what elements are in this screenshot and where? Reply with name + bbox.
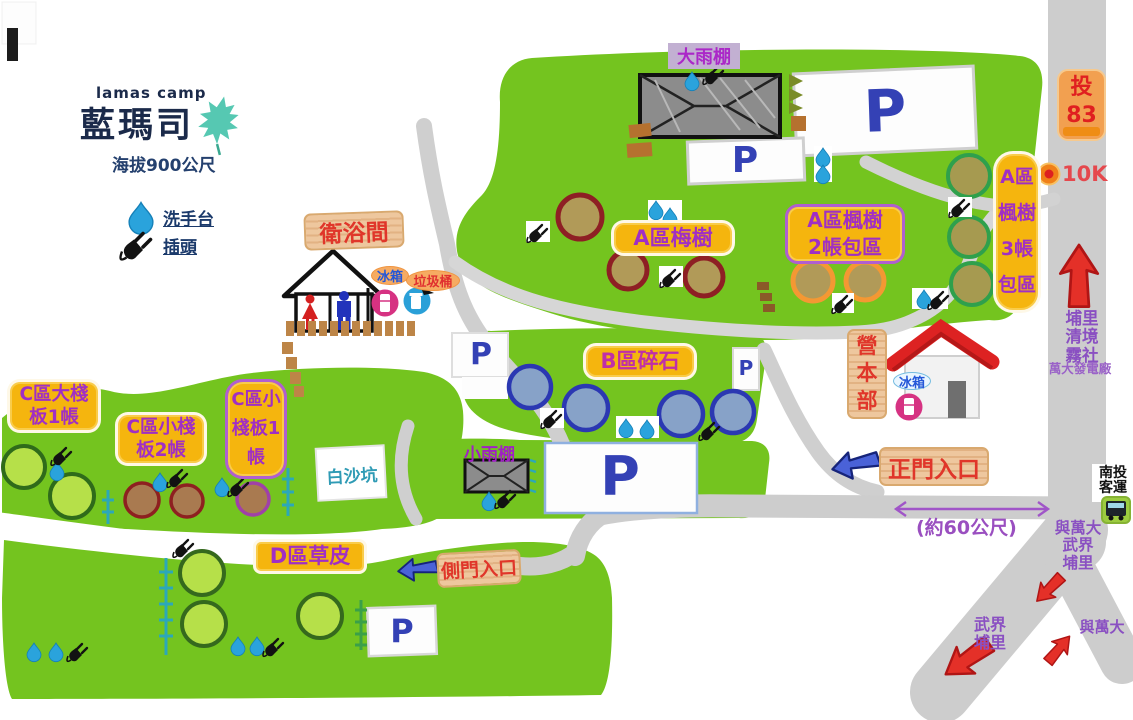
zone-a-plum-label: A區梅樹 <box>611 220 735 256</box>
campsites-a-maple3 <box>948 155 993 305</box>
parking-letter: P <box>863 81 908 140</box>
bathroom-fridge-label: 冰箱 <box>371 266 409 285</box>
parking-lot-b-left-ext <box>462 377 508 399</box>
fork-left-destination-label: 武界 埔里 <box>962 616 1018 652</box>
milestone-10k-icon <box>1039 164 1060 185</box>
parking-letter: P <box>732 143 758 179</box>
hq-sign: 營本部 <box>847 329 887 419</box>
bus-stop-label: 南投 客運 <box>1094 466 1132 497</box>
zone-c-large-label: C區大棧 板1帳 <box>7 379 101 433</box>
small-shelter-label: 小雨棚 <box>464 440 515 465</box>
power-plant-label: 萬大發電廠 <box>1042 362 1118 376</box>
bathroom-sign: 衛浴間 <box>303 210 404 250</box>
zone-c-small2-label: C區小棧 板2帳 <box>115 412 207 466</box>
camp-title-zh: 藍瑪司 <box>80 97 194 148</box>
legend-water-label: 洗手台 <box>163 205 214 230</box>
plug-icon <box>121 234 151 260</box>
white-sand-label: 白沙坑 <box>321 460 382 488</box>
zone-b-gravel-label: B區碎石 <box>583 343 697 380</box>
maple-leaf-icon <box>192 92 243 157</box>
bathroom-house <box>284 251 382 331</box>
parking-letter: P <box>390 615 413 647</box>
main-entrance-sign: 正門入口 <box>879 447 989 486</box>
junction-destination-label: 與萬大 武界 埔里 <box>1050 520 1106 572</box>
side-entrance-sign: 側門入口 <box>436 549 522 588</box>
zone-c-small1-label: C區小 棧板1 帳 <box>225 379 287 479</box>
milestone-10k-label: 10K <box>1062 162 1108 186</box>
camp-elevation: 海拔900公尺 <box>112 151 216 176</box>
route-83-text: 投 83 <box>1058 74 1105 129</box>
parking-letter: P <box>739 358 754 378</box>
big-shelter-label: 大雨棚 <box>668 43 740 69</box>
zone-d-grass-label: D區草皮 <box>253 539 367 574</box>
map-edge-mark <box>7 28 18 61</box>
north-destination-label: 埔里 清境 霧社 <box>1060 310 1104 365</box>
campground-map: lamas camp 藍瑪司 海拔900公尺 洗手台 插頭 衛浴間 冰箱 垃圾桶… <box>0 0 1133 720</box>
big-shelter-roof <box>640 75 780 137</box>
fridge-icon <box>372 290 399 317</box>
fork-right-destination-label: 與萬大 <box>1074 619 1130 636</box>
hq-fridge-label: 冰箱 <box>893 372 931 390</box>
fork-right-arrow-icon <box>1040 630 1077 669</box>
parking-letter: P <box>600 450 640 504</box>
campsite-c-pallet-single <box>237 483 269 515</box>
trash-label: 垃圾桶 <box>406 270 460 291</box>
water-icon <box>129 202 153 234</box>
legend-plug-label: 插頭 <box>163 233 197 258</box>
zone-a-maple2-label: A區楓樹 2帳包區 <box>785 204 905 264</box>
zone-a-maple3-label: A區 楓樹 3帳 包區 <box>993 151 1041 313</box>
distance-label: (約60公尺) <box>916 513 1017 540</box>
parking-letter: P <box>470 340 492 370</box>
hq-fridge-icon <box>896 394 923 421</box>
